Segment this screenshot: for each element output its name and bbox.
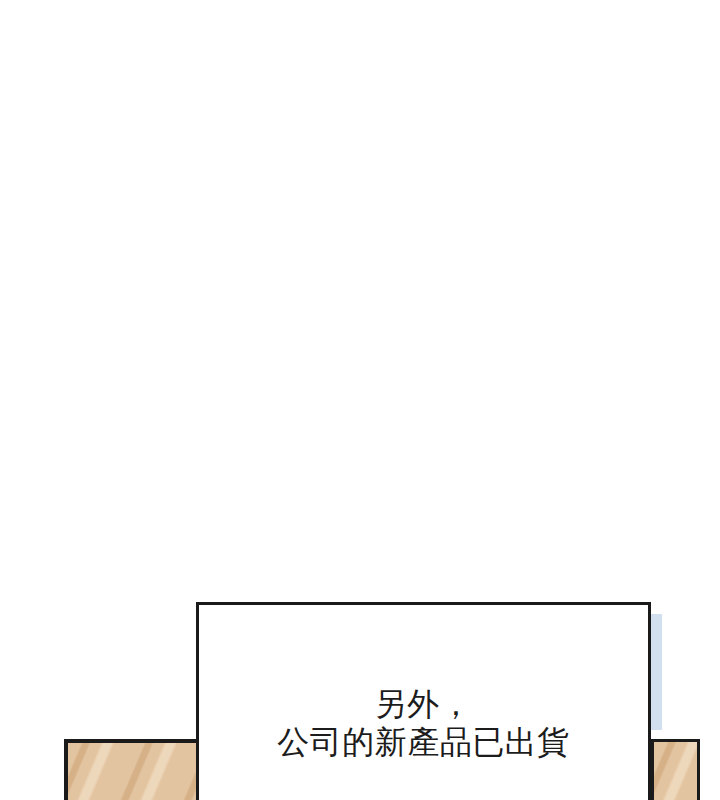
comic-panel: 另外， 公司的新產品已出貨 (0, 0, 720, 800)
narration-line-1: 另外， (199, 685, 648, 723)
narration-box: 另外， 公司的新產品已出貨 (196, 602, 651, 800)
wall-edge-strip (651, 614, 662, 730)
wood-panel-left (64, 739, 199, 800)
narration-line-2: 公司的新產品已出貨 (199, 723, 648, 761)
wood-panel-right (651, 739, 700, 800)
